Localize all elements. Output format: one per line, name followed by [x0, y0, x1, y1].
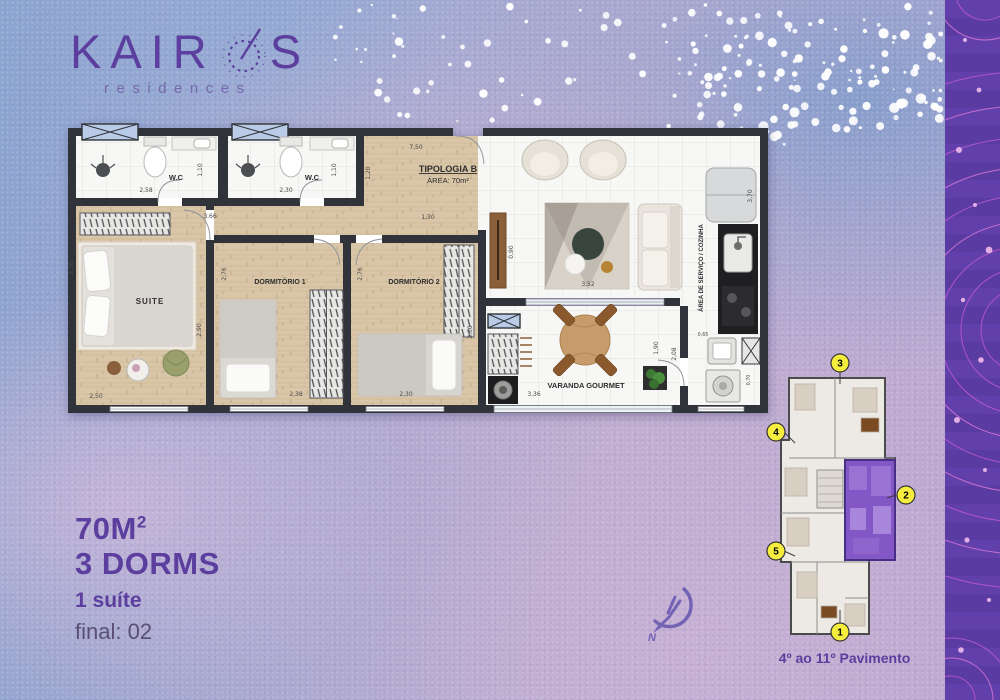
- page: KAIR S residences: [0, 0, 1000, 700]
- svg-text:1,10: 1,10: [197, 163, 204, 177]
- callout-1: 1: [837, 628, 843, 639]
- svg-text:3,70: 3,70: [747, 189, 754, 203]
- callout-2: 2: [903, 491, 909, 502]
- svg-text:7,50: 7,50: [409, 144, 423, 151]
- brand-subtitle: residences: [104, 80, 310, 97]
- svg-text:1,90: 1,90: [653, 341, 660, 355]
- unit-summary: 70M2 3 DORMS 1 suíte final: 02: [75, 512, 220, 645]
- svg-text:2,50: 2,50: [89, 393, 103, 400]
- svg-text:3,60: 3,60: [467, 325, 474, 339]
- brand-name-end: S: [270, 28, 310, 75]
- summary-suite: 1 suíte: [75, 589, 220, 613]
- svg-text:N: N: [648, 632, 657, 644]
- svg-text:2,08: 2,08: [671, 347, 678, 361]
- room-label-wc1: W.C: [169, 173, 184, 182]
- svg-text:2,76: 2,76: [221, 267, 228, 281]
- key-plan: 3 4 2 5 1: [757, 348, 932, 648]
- svg-text:3,52: 3,52: [581, 281, 595, 288]
- callout-3: 3: [837, 359, 843, 370]
- brand-clock-icon: [222, 28, 268, 78]
- floor-plan: W.C W.C SUITE DORMITÓRIO 1 DORMITÓRIO 2 …: [58, 118, 778, 428]
- svg-text:0,90: 0,90: [508, 245, 515, 259]
- svg-text:1,30: 1,30: [421, 214, 435, 221]
- svg-text:2,58: 2,58: [139, 187, 153, 194]
- svg-text:2,76: 2,76: [68, 261, 75, 275]
- plan-typology-area: ÁREA: 70m²: [427, 176, 469, 185]
- key-plan-highlight-unit: [845, 460, 895, 560]
- room-label-varanda: VARANDA GOURMET: [547, 381, 624, 390]
- svg-text:2,38: 2,38: [289, 391, 303, 398]
- room-label-wc2: W.C: [305, 173, 320, 182]
- room-label-dorm1: DORMITÓRIO 1: [254, 277, 305, 286]
- svg-text:3,66: 3,66: [203, 213, 217, 220]
- room-label-suite: SUITE: [136, 297, 165, 306]
- room-label-service: ÁREA DE SERVIÇO / COZINHA: [698, 224, 705, 312]
- svg-text:2,90: 2,90: [196, 323, 203, 337]
- summary-area: 70M2: [75, 512, 220, 547]
- summary-dorms: 3 DORMS: [75, 547, 220, 582]
- svg-text:1,20: 1,20: [365, 166, 372, 180]
- summary-area-sup: 2: [137, 513, 147, 532]
- svg-text:2,76: 2,76: [357, 267, 364, 281]
- brand-name-start: KAIR: [70, 28, 216, 75]
- callout-5: 5: [773, 547, 779, 558]
- svg-text:1,10: 1,10: [331, 163, 338, 177]
- side-band-decoration: [945, 0, 1000, 700]
- north-arrow-icon: N: [642, 583, 702, 645]
- svg-text:3,36: 3,36: [527, 391, 541, 398]
- brand-logo: KAIR S residences: [70, 28, 310, 97]
- svg-text:2,30: 2,30: [279, 187, 293, 194]
- svg-text:0,65: 0,65: [698, 332, 709, 338]
- callout-4: 4: [773, 428, 779, 439]
- summary-final: final: 02: [75, 619, 220, 645]
- svg-text:2,30: 2,30: [399, 391, 413, 398]
- room-label-dorm2: DORMITÓRIO 2: [388, 277, 439, 286]
- key-plan-caption: 4º ao 11º Pavimento: [757, 650, 932, 666]
- svg-text:0,70: 0,70: [746, 375, 752, 386]
- plan-typology-title: TIPOLOGIA B: [419, 164, 478, 174]
